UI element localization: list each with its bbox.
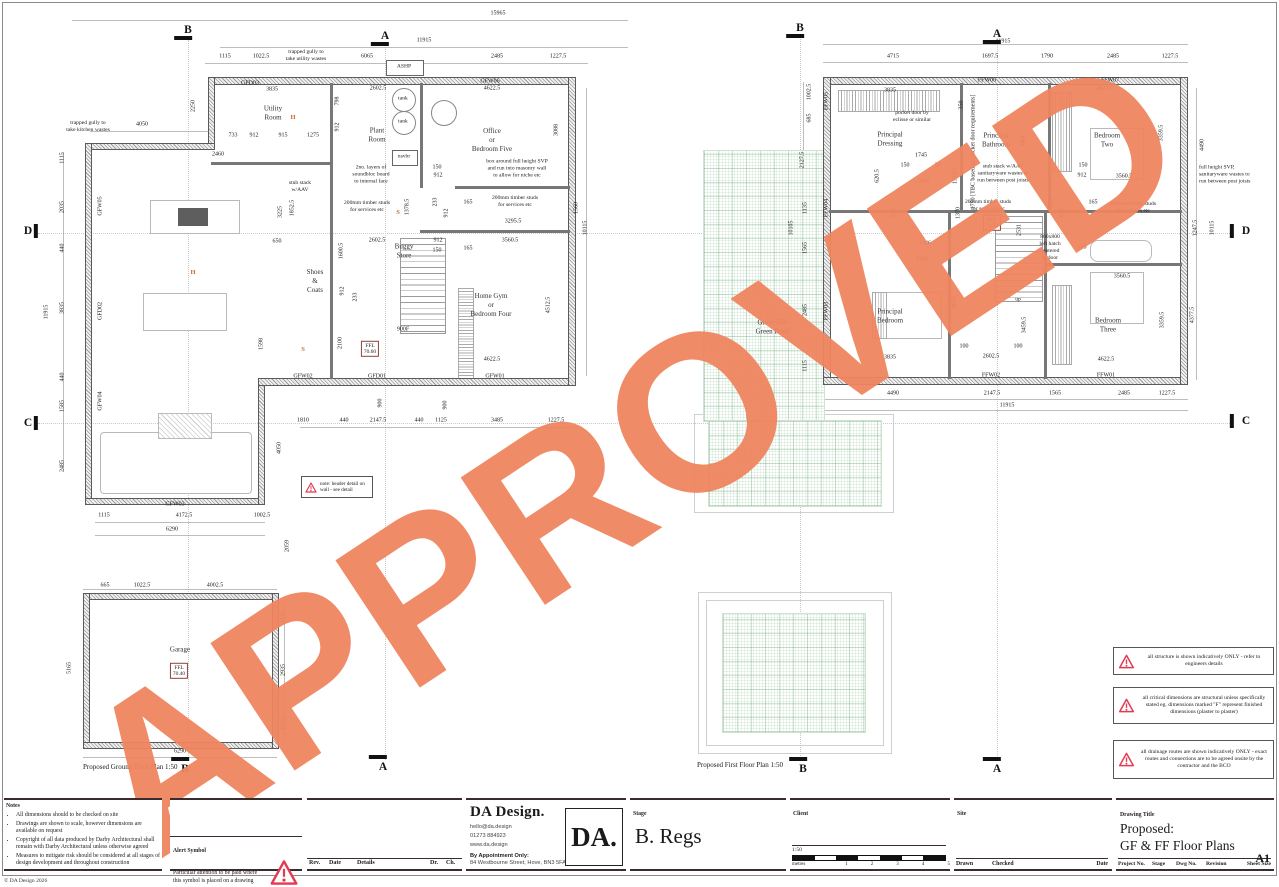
warning-box-drainage: all drainage routes are shown indicative… <box>1113 740 1274 779</box>
project-no-label: Project No. <box>1118 861 1152 867</box>
scale-tick: 3 <box>873 862 899 867</box>
dim-line <box>72 20 628 21</box>
details-header: Details <box>357 860 430 866</box>
warning-triangle-icon <box>1118 752 1135 767</box>
titleblock-title: Drawing Title Proposed: GF & FF Floor Pl… <box>1116 798 1274 871</box>
titleblock-alert: Alert Symbol Particular attention to be … <box>170 798 302 871</box>
stage-label: Stage <box>633 811 647 817</box>
site-bottom-row: Drawn Checked Date <box>956 858 1108 867</box>
titleblock-client: Client 1:50 metres 1 2 3 4 5 <box>790 798 950 871</box>
note-item: Measures to mitigate risk should be cons… <box>16 853 160 868</box>
dwg-no-label: Dwg No. <box>1176 861 1206 867</box>
copyright: © DA Design 2026 <box>4 878 47 884</box>
dim-line <box>95 535 265 536</box>
bed2-wardrobe <box>1052 92 1072 172</box>
dim-line <box>823 62 1188 63</box>
titleblock-company: DA Design. hello@da.design 01273 884923 … <box>466 798 626 871</box>
titleblock-notes: Notes All dimensions should to be checke… <box>4 798 162 871</box>
ashp-unit <box>386 60 424 76</box>
stage-header: Stage <box>1152 861 1176 867</box>
note-item: Copyright of all data produced by Darby … <box>16 837 160 852</box>
green-roof-lower <box>708 420 882 507</box>
note-item: All dimensions should to be checked on s… <box>16 812 160 820</box>
scale-area: 1:50 metres 1 2 3 4 5 <box>792 845 946 867</box>
bed-two <box>1090 128 1144 180</box>
scale-ratio: 1:50 <box>792 847 946 853</box>
titleblock-revisions: Rev. Date Details Dr. Ch. <box>307 798 462 871</box>
site-label: Site <box>957 811 966 817</box>
tank-1 <box>392 88 416 112</box>
checked-label: Checked <box>992 861 1096 867</box>
alert-triangle-icon <box>269 859 299 886</box>
dim-line <box>95 522 265 523</box>
alert-text: Particular attention to be paid where th… <box>173 870 265 886</box>
titleblock-stage: Stage B. Regs <box>630 798 786 871</box>
revision-header-row: Rev. Date Details Dr. Ch. <box>307 858 462 869</box>
date-label: Date <box>1096 861 1108 867</box>
dim-line <box>823 44 1188 45</box>
dim-line <box>83 589 277 590</box>
dim-line <box>300 427 578 428</box>
drawing-sheet: 159651191511151022.5606524851227.5383526… <box>0 0 1279 887</box>
drawing-title-line2: GF & FF Floor Plans <box>1120 838 1274 855</box>
dim-line <box>823 410 1188 411</box>
ff-stairs <box>995 216 1043 302</box>
revision-label: Revision <box>1206 861 1238 867</box>
alert-triangle-icon <box>305 482 317 493</box>
ch-header: Ch. <box>446 860 460 866</box>
scale-bar <box>792 855 946 861</box>
warning-box-structure: all structure is shown indicatively ONLY… <box>1113 647 1274 675</box>
green-roof-side <box>703 150 825 422</box>
tank-2 <box>392 111 416 135</box>
drawn-label: Drawn <box>956 861 992 867</box>
alert-title: Alert Symbol <box>173 848 206 854</box>
dr-header: Dr. <box>430 860 446 866</box>
notes-list: All dimensions should to be checked on s… <box>16 812 160 868</box>
scale-tick: 4 <box>899 862 925 867</box>
company-logo: DA. <box>565 808 623 866</box>
dim-line <box>90 131 208 132</box>
titleblock-site: Site Drawn Checked Date <box>954 798 1112 871</box>
warning-box-dimensions: all critical dimensions are structural u… <box>1113 687 1274 724</box>
section-line-c <box>38 423 1234 424</box>
dim-line <box>586 88 587 376</box>
date-header: Date <box>329 860 357 866</box>
warning-triangle-icon <box>1118 654 1135 669</box>
dim-line <box>63 152 64 470</box>
gym-equipment <box>458 288 474 382</box>
dressing-wardrobe <box>838 90 940 112</box>
ff-caption: Proposed First Floor Plan 1:50 <box>697 761 783 769</box>
warning-text: all critical dimensions are structural u… <box>1139 695 1269 717</box>
dim-line <box>284 600 285 740</box>
hob <box>178 208 208 226</box>
gf-caption: Proposed Ground Floor Plan 1:50 <box>83 763 178 771</box>
section-line-a2 <box>997 42 998 760</box>
rug <box>158 413 212 439</box>
bath-tub <box>1090 240 1152 262</box>
rev-header: Rev. <box>309 860 329 866</box>
section-line-a <box>385 44 386 760</box>
ceiling-fan <box>431 100 457 126</box>
sofa <box>100 432 252 494</box>
scale-tick: 1 <box>822 862 848 867</box>
dim-line <box>823 399 1188 400</box>
warning-text: all drainage routes are shown indicative… <box>1139 749 1269 771</box>
bed3-wardrobe <box>1052 285 1072 365</box>
title-bottom-row: Project No. Stage Dwg No. Revision Sheet… <box>1118 858 1271 867</box>
header-detail-note: note: header detail on wall - see detail <box>301 476 373 498</box>
sheet-size-value: A1 <box>1255 851 1270 866</box>
scale-unit: metres <box>792 862 822 867</box>
drawing-title-line1: Proposed: <box>1120 821 1274 838</box>
warning-text: all structure is shown indicatively ONLY… <box>1139 654 1269 669</box>
gf-stairs <box>400 238 446 334</box>
dim-line <box>220 47 628 48</box>
stage-value: B. Regs <box>635 824 786 849</box>
warning-triangle-icon <box>1118 698 1135 713</box>
principal-headboard <box>872 292 887 339</box>
client-label: Client <box>793 811 808 817</box>
note-item: Drawings are shown to scale, however dim… <box>16 821 160 836</box>
dim-line <box>83 757 277 758</box>
scale-tick: 2 <box>848 862 874 867</box>
dim-line <box>1196 88 1197 380</box>
nsvbr-box <box>392 150 418 166</box>
bed-three <box>1090 272 1144 324</box>
notes-title: Notes <box>6 803 160 809</box>
drawing-title-label: Drawing Title <box>1120 812 1154 818</box>
note-text: note: header detail on wall - see detail <box>320 481 369 493</box>
scale-numbers: metres 1 2 3 4 5 <box>792 862 950 867</box>
dining-table <box>143 293 227 331</box>
scale-tick: 5 <box>924 862 950 867</box>
garage-roof <box>722 613 866 733</box>
